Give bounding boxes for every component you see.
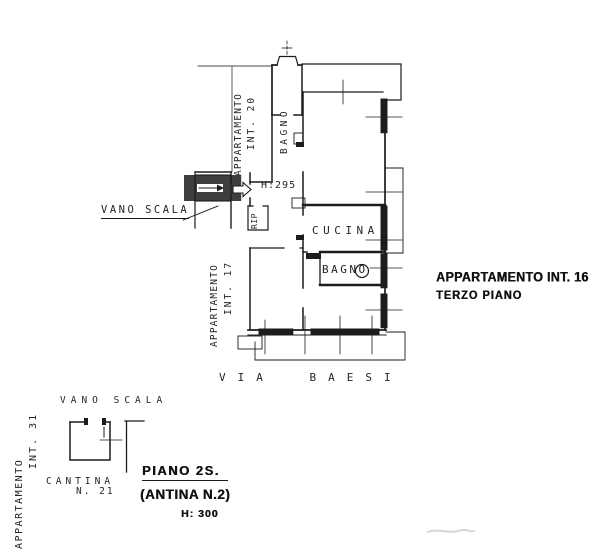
vent-stack — [277, 41, 298, 65]
apartment-17-label-line2: INT. 17 — [223, 261, 234, 315]
kitchen-label: CUCINA — [312, 224, 379, 237]
apartment-20-label-line2: INT. 20 — [246, 94, 257, 150]
basement-caption-cellar: (ANTINA N.2) — [140, 487, 230, 502]
stairwell-label: VANO SCALA — [101, 204, 189, 219]
door-jambs — [296, 142, 321, 259]
cellar-linework — [70, 421, 144, 472]
plan-title-line2: TERZO PIANO — [436, 289, 522, 302]
bathroom-top-label: BAGNO — [279, 84, 290, 154]
basement-caption-floor: PIANO 2S. — [142, 463, 228, 481]
apartment-17-label-line1: APPARTAMENTO — [209, 223, 220, 347]
cellar-label-line2: N. 21 — [76, 486, 115, 497]
outer-walls — [248, 64, 401, 335]
floorplan-document: APPARTAMENTO INT. 20 BAGNO VANO SCALA H:… — [0, 0, 600, 552]
scan-smudge — [428, 530, 474, 532]
apartment-31-label-line2: INT. 31 — [28, 411, 39, 469]
ceiling-height-label: H:295 — [261, 180, 296, 191]
cellar-door-jambs — [84, 418, 106, 425]
street-label: VIA BAESI — [219, 371, 403, 384]
basement-stairwell-label: VANO SCALA — [60, 395, 167, 406]
closet-label: RIP — [250, 207, 259, 229]
apartment-31-label-line1: APPARTAMENTO — [14, 411, 25, 549]
staircase — [195, 172, 231, 228]
plan-title-line1: APPARTAMENTO INT. 16 — [436, 269, 589, 285]
interior-walls — [250, 65, 385, 330]
apartment-20-label-line1: APPARTAMENTO — [233, 62, 244, 176]
bathroom-main-label: BAGNO — [322, 263, 368, 276]
basement-caption-height: H: 300 — [181, 508, 219, 520]
